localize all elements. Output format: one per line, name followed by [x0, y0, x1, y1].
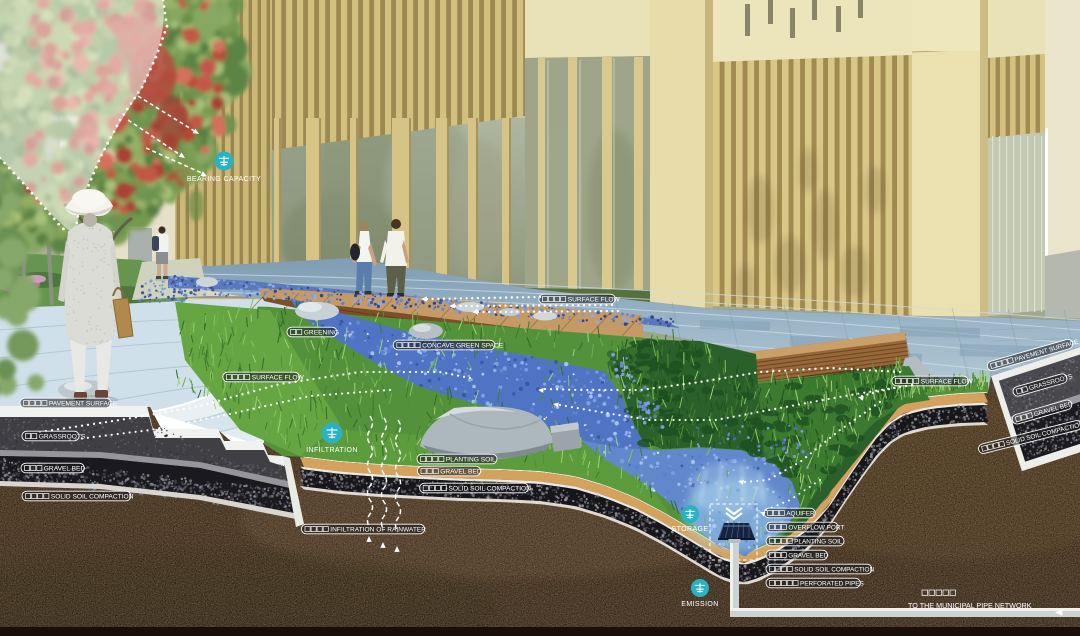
- svg-text:BEARING CAPACITY: BEARING CAPACITY: [187, 176, 261, 183]
- svg-text:SURFACE FLOW: SURFACE FLOW: [568, 296, 621, 303]
